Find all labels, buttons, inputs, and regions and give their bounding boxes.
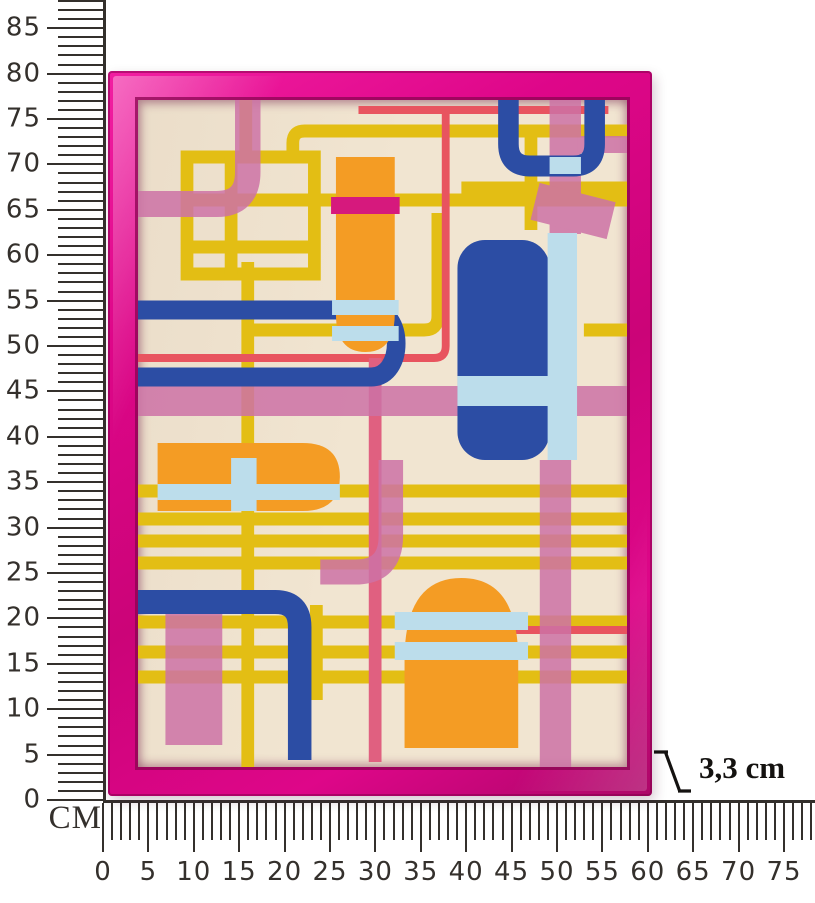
ruler-tick: [783, 803, 785, 852]
ruler-tick: [747, 803, 749, 840]
art-shape: [332, 300, 399, 315]
ruler-tick: [529, 803, 531, 840]
ruler-tick: [511, 803, 513, 852]
ruler-tick-label: 75: [6, 105, 41, 131]
ruler-tick-label: 70: [6, 151, 41, 177]
ruler-tick: [665, 803, 667, 840]
ruler-tick-label: 50: [539, 859, 574, 885]
ruler-tick-label: 40: [449, 859, 484, 885]
ruler-tick: [483, 803, 485, 840]
ruler-tick: [58, 554, 103, 556]
ruler-tick: [429, 803, 431, 840]
ruler-tick: [58, 18, 103, 20]
art-shape: [332, 326, 399, 341]
ruler-tick: [58, 172, 103, 174]
ruler-tick: [692, 803, 694, 852]
ruler-tick-label: 75: [766, 859, 801, 885]
ruler-tick: [47, 345, 103, 347]
ruler-tick: [438, 803, 440, 840]
ruler-tick: [58, 272, 103, 274]
ruler-tick: [156, 803, 158, 840]
ruler-tick: [47, 663, 103, 665]
ruler-tick: [58, 735, 103, 737]
ruler-tick: [719, 803, 721, 840]
ruler-tick: [175, 803, 177, 840]
ruler-tick: [58, 372, 103, 374]
ruler-tick: [58, 781, 103, 783]
ruler-tick: [447, 803, 449, 840]
ruler-tick: [202, 803, 204, 840]
ruler-tick: [47, 300, 103, 302]
ruler-tick: [58, 109, 103, 111]
ruler-tick-label: 45: [6, 378, 41, 404]
ruler-tick: [58, 699, 103, 701]
ruler-tick-label: 0: [94, 859, 112, 885]
ruler-tick: [58, 626, 103, 628]
ruler-tick: [58, 82, 103, 84]
ruler-tick: [58, 381, 103, 383]
ruler-tick-label: 40: [6, 423, 41, 449]
ruler-tick-label: 85: [6, 15, 41, 41]
ruler-tick: [47, 436, 103, 438]
ruler-tick: [58, 263, 103, 265]
art-shape: [395, 612, 528, 630]
ruler-tick: [58, 654, 103, 656]
ruler-tick: [58, 545, 103, 547]
product-photo: 0510152025303540455055606570758085 05101…: [0, 0, 815, 900]
ruler-tick: [710, 803, 712, 840]
ruler-tick-label: 35: [403, 859, 438, 885]
art-shape: [165, 612, 222, 745]
ruler-tick: [338, 803, 340, 840]
ruler-tick: [58, 581, 103, 583]
ruler-tick: [47, 527, 103, 529]
ruler-tick-label: 25: [312, 859, 347, 885]
ruler-tick: [284, 803, 286, 852]
ruler-tick: [647, 803, 649, 852]
ruler-tick: [58, 327, 103, 329]
ruler-tick: [58, 182, 103, 184]
ruler-tick: [58, 191, 103, 193]
horizontal-ruler: 051015202530354045505560657075: [103, 800, 815, 903]
ruler-tick: [166, 803, 168, 840]
ruler-tick: [756, 803, 758, 840]
ruler-tick: [58, 399, 103, 401]
ruler-unit-label: CM: [36, 802, 102, 835]
ruler-tick: [293, 803, 295, 840]
ruler-tick: [393, 803, 395, 840]
ruler-tick-label: 45: [494, 859, 529, 885]
art-shape: [577, 386, 627, 416]
ruler-tick: [765, 803, 767, 840]
ruler-tick: [58, 91, 103, 93]
ruler-tick: [58, 772, 103, 774]
ruler-tick: [58, 645, 103, 647]
ruler-tick-label: 20: [267, 859, 302, 885]
ruler-tick: [801, 803, 803, 840]
ruler-tick: [601, 803, 603, 852]
artwork-canvas: [138, 100, 627, 767]
ruler-tick: [58, 0, 103, 2]
ruler-tick: [58, 409, 103, 411]
art-shape: [457, 240, 549, 460]
ruler-tick: [792, 803, 794, 840]
ruler-tick: [275, 803, 277, 840]
ruler-tick: [58, 672, 103, 674]
ruler-tick-label: 60: [630, 859, 665, 885]
ruler-tick-label: 15: [6, 650, 41, 676]
ruler-tick: [620, 803, 622, 840]
ruler-tick: [656, 803, 658, 840]
ruler-tick: [58, 518, 103, 520]
ruler-tick: [193, 803, 195, 852]
ruler-tick: [265, 803, 267, 840]
ruler-tick: [58, 717, 103, 719]
ruler-tick: [120, 803, 122, 840]
ruler-tick: [58, 363, 103, 365]
ruler-tick: [674, 803, 676, 840]
art-shape: [457, 376, 577, 406]
ruler-tick-label: 10: [6, 696, 41, 722]
ruler-tick: [47, 209, 103, 211]
art-shape: [331, 197, 400, 214]
artwork: [138, 100, 627, 767]
art-shape: [405, 578, 519, 748]
art-shape: [158, 484, 340, 500]
ruler-tick: [58, 136, 103, 138]
ruler-tick: [147, 803, 149, 852]
art-shape: [550, 157, 581, 174]
ruler-tick: [58, 354, 103, 356]
ruler-tick: [383, 803, 385, 840]
ruler-tick: [810, 803, 812, 840]
ruler-tick: [47, 481, 103, 483]
picture-frame: [108, 71, 652, 796]
ruler-tick: [58, 563, 103, 565]
ruler-tick: [302, 803, 304, 840]
ruler-tick: [58, 536, 103, 538]
ruler-tick: [311, 803, 313, 840]
ruler-tick: [58, 100, 103, 102]
ruler-tick-label: 80: [6, 60, 41, 86]
ruler-tick: [58, 418, 103, 420]
ruler-tick: [58, 463, 103, 465]
ruler-tick-label: 20: [6, 605, 41, 631]
ruler-tick: [58, 454, 103, 456]
ruler-tick: [256, 803, 258, 840]
ruler-tick: [47, 572, 103, 574]
ruler-tick: [111, 803, 113, 840]
depth-annotation: 3,3 cm: [652, 745, 785, 795]
ruler-tick: [58, 318, 103, 320]
ruler-tick-label: 5: [23, 741, 41, 767]
ruler-tick: [47, 390, 103, 392]
ruler-tick: [638, 803, 640, 840]
ruler-tick-label: 50: [6, 332, 41, 358]
art-shape: [336, 157, 395, 352]
ruler-tick: [420, 803, 422, 852]
ruler-tick-label: 55: [585, 859, 620, 885]
ruler-tick-label: 25: [6, 559, 41, 585]
ruler-tick: [58, 127, 103, 129]
ruler-tick: [220, 803, 222, 840]
art-shape: [548, 233, 577, 460]
art-shape: [540, 460, 571, 767]
ruler-tick: [58, 508, 103, 510]
ruler-tick-label: 60: [6, 242, 41, 268]
art-shape: [138, 386, 457, 416]
ruler-tick: [583, 803, 585, 840]
ruler-tick: [774, 803, 776, 840]
ruler-tick: [402, 803, 404, 840]
ruler-tick: [247, 803, 249, 840]
ruler-tick: [58, 726, 103, 728]
ruler-tick: [211, 803, 213, 840]
ruler-tick: [238, 803, 240, 852]
ruler-tick-label: 5: [140, 859, 158, 885]
ruler-tick: [58, 236, 103, 238]
ruler-tick-label: 55: [6, 287, 41, 313]
ruler-tick: [58, 499, 103, 501]
ruler-tick: [329, 803, 331, 852]
ruler-tick: [347, 803, 349, 840]
ruler-tick: [365, 803, 367, 840]
vertical-ruler: 0510152025303540455055606570758085: [0, 0, 106, 800]
ruler-tick: [47, 73, 103, 75]
ruler-tick: [729, 803, 731, 840]
depth-measure-icon: [652, 749, 692, 795]
ruler-tick: [58, 227, 103, 229]
ruler-tick: [492, 803, 494, 840]
ruler-tick: [565, 803, 567, 840]
ruler-tick: [184, 803, 186, 840]
ruler-tick: [58, 64, 103, 66]
ruler-tick: [58, 590, 103, 592]
ruler-tick: [58, 490, 103, 492]
ruler-tick: [374, 803, 376, 852]
ruler-tick: [520, 803, 522, 840]
ruler-tick: [58, 608, 103, 610]
ruler-tick: [547, 803, 549, 840]
ruler-tick: [502, 803, 504, 840]
ruler-tick: [58, 763, 103, 765]
ruler-tick-label: 30: [358, 859, 393, 885]
ruler-tick: [356, 803, 358, 840]
ruler-tick: [58, 218, 103, 220]
ruler-tick: [456, 803, 458, 840]
art-shape: [395, 642, 528, 660]
ruler-tick-label: 15: [222, 859, 257, 885]
art-hotpink-overlays: [331, 197, 400, 214]
ruler-tick: [58, 154, 103, 156]
ruler-tick: [610, 803, 612, 840]
ruler-tick-label: 10: [176, 859, 211, 885]
ruler-tick-label: 65: [6, 196, 41, 222]
ruler-tick: [58, 54, 103, 56]
ruler-tick: [102, 803, 104, 852]
ruler-tick: [58, 9, 103, 11]
ruler-tick: [58, 281, 103, 283]
ruler-tick: [58, 200, 103, 202]
ruler-tick: [58, 145, 103, 147]
ruler-tick: [629, 803, 631, 840]
ruler-tick: [58, 445, 103, 447]
ruler-tick: [47, 708, 103, 710]
ruler-tick-label: 30: [6, 514, 41, 540]
ruler-tick: [474, 803, 476, 840]
ruler-tick: [47, 118, 103, 120]
ruler-tick: [58, 336, 103, 338]
ruler-tick: [411, 803, 413, 840]
ruler-tick: [58, 636, 103, 638]
ruler-tick: [683, 803, 685, 840]
ruler-tick: [58, 36, 103, 38]
ruler-tick-label: 35: [6, 469, 41, 495]
ruler-tick: [58, 291, 103, 293]
ruler-tick: [465, 803, 467, 852]
ruler-tick: [47, 254, 103, 256]
ruler-tick: [592, 803, 594, 840]
ruler-tick: [574, 803, 576, 840]
ruler-tick: [47, 754, 103, 756]
ruler-tick: [58, 309, 103, 311]
ruler-tick: [58, 45, 103, 47]
ruler-tick: [58, 681, 103, 683]
ruler-tick: [320, 803, 322, 840]
ruler-tick: [738, 803, 740, 852]
ruler-tick: [229, 803, 231, 840]
ruler-tick: [47, 163, 103, 165]
ruler-tick: [138, 803, 140, 840]
ruler-tick: [58, 790, 103, 792]
depth-value: 3,3 cm: [699, 745, 785, 791]
ruler-tick: [47, 27, 103, 29]
ruler-tick: [58, 427, 103, 429]
ruler-tick: [58, 472, 103, 474]
ruler-tick: [47, 617, 103, 619]
ruler-tick-label: 65: [676, 859, 711, 885]
ruler-tick: [701, 803, 703, 840]
ruler-tick: [129, 803, 131, 840]
ruler-tick: [58, 599, 103, 601]
ruler-tick: [556, 803, 558, 852]
ruler-tick-label: 70: [721, 859, 756, 885]
ruler-tick: [58, 245, 103, 247]
ruler-tick: [58, 690, 103, 692]
ruler-tick: [538, 803, 540, 840]
ruler-tick: [58, 745, 103, 747]
